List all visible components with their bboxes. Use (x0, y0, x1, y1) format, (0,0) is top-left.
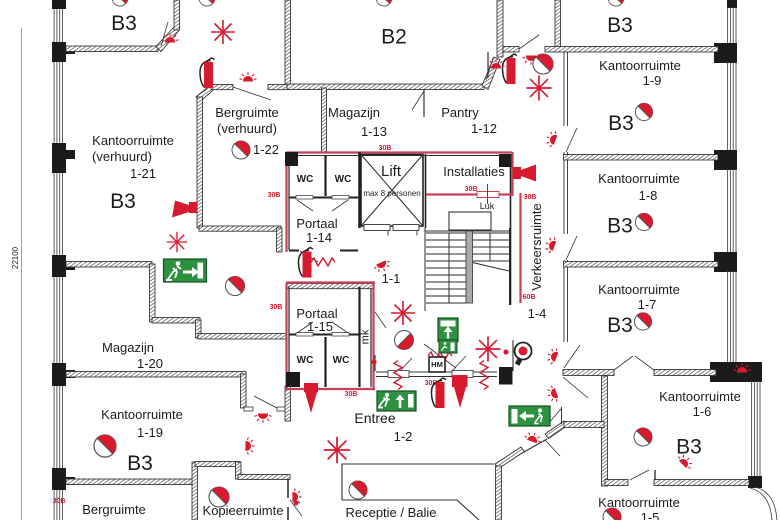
svg-text:Kantoorruimte: Kantoorruimte (599, 58, 681, 73)
svg-text:Magazijn: Magazijn (102, 340, 154, 355)
svg-text:1-5: 1-5 (641, 510, 660, 520)
svg-text:60B: 60B (523, 294, 536, 301)
svg-text:Lift: Lift (381, 163, 402, 180)
svg-text:B3: B3 (110, 190, 136, 213)
svg-text:30B: 30B (465, 186, 478, 193)
svg-text:B3: B3 (111, 12, 137, 35)
svg-text:1-4: 1-4 (528, 306, 547, 321)
svg-text:Verkeersruimte: Verkeersruimte (529, 203, 544, 290)
svg-text:WC: WC (297, 174, 314, 185)
svg-text:WC: WC (333, 355, 350, 366)
svg-text:Bergruimte: Bergruimte (82, 502, 146, 517)
svg-text:B3: B3 (607, 314, 633, 337)
svg-text:WC: WC (297, 355, 314, 366)
svg-text:Kantoorruimte: Kantoorruimte (598, 171, 680, 186)
svg-text:mk: mk (360, 329, 372, 344)
svg-text:B3: B3 (127, 452, 153, 475)
svg-text:WC: WC (335, 174, 352, 185)
svg-text:1-15: 1-15 (307, 319, 333, 334)
svg-text:1-19: 1-19 (137, 425, 163, 440)
svg-text:B3: B3 (607, 215, 633, 238)
svg-text:Bergruimte: Bergruimte (215, 105, 279, 120)
svg-text:1-6: 1-6 (693, 404, 712, 419)
svg-text:1-12: 1-12 (471, 121, 497, 136)
svg-text:Kantoorruimte: Kantoorruimte (92, 133, 174, 148)
svg-text:Kantoorruimte: Kantoorruimte (598, 282, 680, 297)
svg-text:B3: B3 (608, 112, 634, 135)
svg-text:1-2: 1-2 (394, 429, 413, 444)
svg-text:Pantry: Pantry (441, 105, 479, 120)
svg-text:30B: 30B (379, 145, 392, 152)
svg-text:1-1: 1-1 (382, 271, 401, 286)
svg-text:HM: HM (431, 360, 443, 369)
svg-text:22100: 22100 (11, 246, 20, 269)
svg-text:30B: 30B (345, 391, 358, 398)
svg-text:Luk: Luk (480, 201, 495, 211)
svg-text:30B: 30B (270, 304, 283, 311)
svg-text:1-20: 1-20 (137, 356, 163, 371)
svg-text:1-9: 1-9 (643, 73, 662, 88)
svg-text:Kantoorruimte: Kantoorruimte (659, 389, 741, 404)
svg-text:Kantoorruimte: Kantoorruimte (101, 407, 183, 422)
svg-text:Entree: Entree (354, 410, 395, 426)
svg-text:B3: B3 (676, 436, 702, 459)
svg-text:1-13: 1-13 (361, 124, 387, 139)
svg-text:max 8 personen: max 8 personen (363, 189, 420, 198)
svg-text:(verhuurd): (verhuurd) (217, 121, 277, 136)
svg-text:Installaties: Installaties (443, 164, 505, 179)
svg-text:Receptie / Balie: Receptie / Balie (345, 505, 436, 520)
svg-text:30B: 30B (53, 498, 66, 505)
svg-text:B2: B2 (381, 26, 407, 49)
svg-text:1-21: 1-21 (130, 166, 156, 181)
svg-text:30B: 30B (524, 194, 537, 201)
svg-text:Portaal: Portaal (296, 216, 337, 231)
svg-text:1-7: 1-7 (638, 297, 657, 312)
svg-text:1-22: 1-22 (253, 142, 279, 157)
svg-text:B3: B3 (607, 14, 633, 37)
svg-text:Magazijn: Magazijn (328, 105, 380, 120)
svg-text:1-14: 1-14 (306, 230, 332, 245)
svg-text:30B: 30B (268, 192, 281, 199)
svg-text:(verhuurd): (verhuurd) (92, 149, 152, 164)
svg-text:1-8: 1-8 (639, 188, 658, 203)
